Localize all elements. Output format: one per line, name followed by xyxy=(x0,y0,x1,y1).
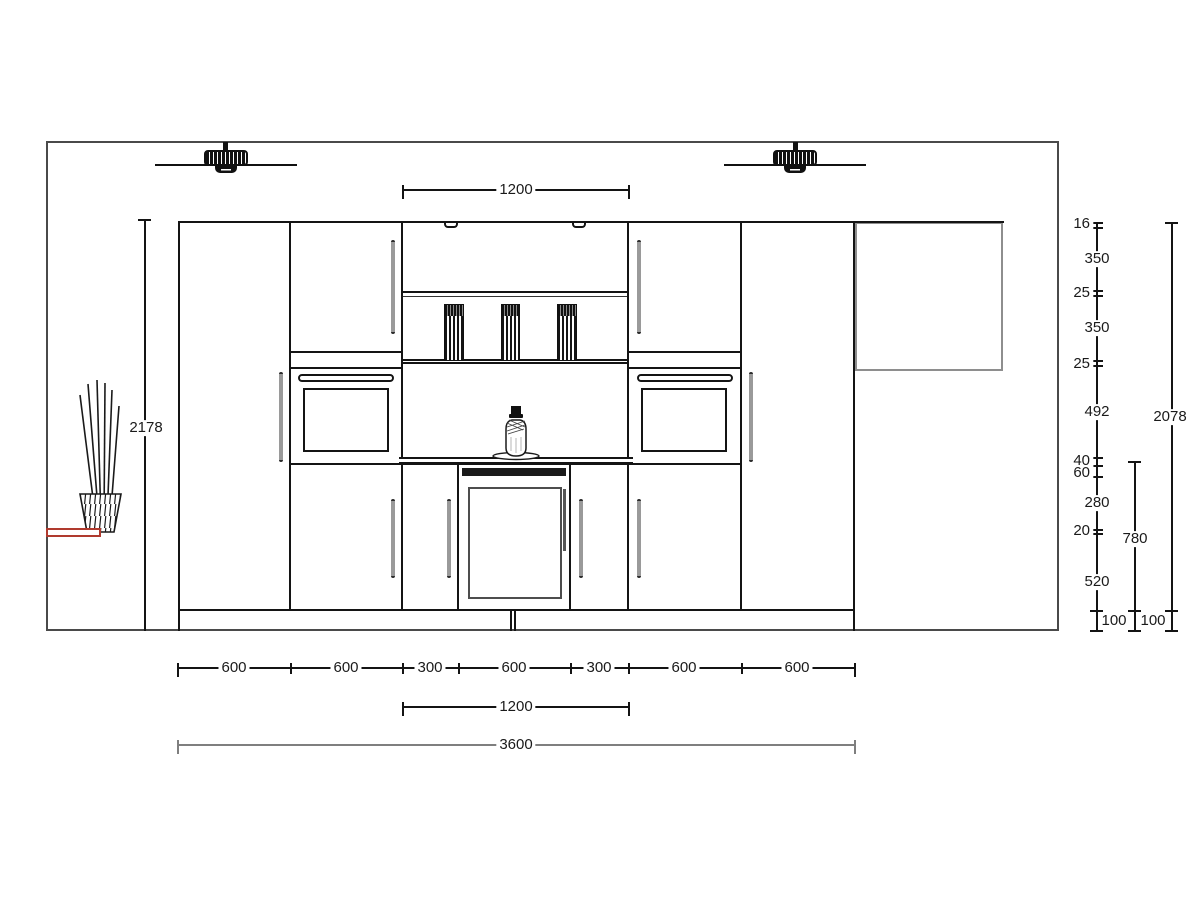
door-handle xyxy=(749,372,753,462)
dim-label: 280 xyxy=(1081,495,1112,511)
dim-tick xyxy=(1128,630,1141,632)
oven-left-handle-bar xyxy=(298,374,394,382)
canister-icon xyxy=(444,304,464,361)
flipup-handle-left xyxy=(444,223,458,228)
dim-label: 350 xyxy=(1081,320,1112,336)
door-handle xyxy=(391,499,395,578)
cooler-leg xyxy=(514,611,516,631)
wine-cooler-window xyxy=(468,487,562,599)
dim-tick xyxy=(1128,610,1141,612)
dim-label: 100 xyxy=(1098,613,1129,629)
dim-tick xyxy=(570,663,572,674)
base-door-right-300 xyxy=(569,463,629,611)
oven-right-window xyxy=(641,388,727,452)
dim-tick xyxy=(854,663,856,677)
door-handle xyxy=(447,499,451,578)
flipup-handle-right xyxy=(572,223,586,228)
canister-body xyxy=(558,316,576,360)
dim-tick xyxy=(628,185,630,199)
dim-label: 25 xyxy=(1070,356,1093,372)
dim-line-right-total xyxy=(1171,223,1173,631)
door-handle xyxy=(637,240,641,334)
dim-label: 600 xyxy=(668,660,699,676)
dim-label: 350 xyxy=(1081,251,1112,267)
dim-tick xyxy=(402,185,404,199)
cabinet-top-line-extension xyxy=(855,221,1004,223)
flipup-door-bottom-line xyxy=(403,291,627,293)
tall-cabinet-left xyxy=(178,221,291,611)
door-handle xyxy=(637,499,641,578)
base-door-right-600 xyxy=(627,463,742,611)
cooler-leg xyxy=(510,611,512,631)
bottle-icon xyxy=(490,405,546,463)
plinth-leg xyxy=(178,611,180,631)
dim-label: 600 xyxy=(498,660,529,676)
dim-tick xyxy=(290,663,292,674)
dim-label-base-height: 780 xyxy=(1119,531,1150,547)
wine-cooler-top-band xyxy=(462,468,566,476)
dim-tick xyxy=(628,663,630,674)
dim-tick xyxy=(1165,630,1178,632)
dim-label: 20 xyxy=(1070,523,1093,539)
dim-label: 300 xyxy=(583,660,614,676)
dim-label: 60 xyxy=(1070,465,1093,481)
dim-label-left-height: 2178 xyxy=(126,420,165,436)
canister-icon xyxy=(501,304,520,361)
dim-label-right-total: 2078 xyxy=(1150,409,1189,425)
light-base xyxy=(784,166,806,173)
door-handle xyxy=(579,499,583,578)
canister-icon xyxy=(557,304,577,361)
canister-cap xyxy=(445,305,463,316)
wine-cooler-handle xyxy=(563,489,566,551)
dim-label: 492 xyxy=(1081,404,1112,420)
dim-label: 25 xyxy=(1070,285,1093,301)
door-handle xyxy=(391,240,395,334)
dim-tick xyxy=(1090,630,1103,632)
dim-tick xyxy=(402,663,404,674)
plant-icon xyxy=(58,372,144,538)
base-door-left-600 xyxy=(289,463,403,611)
dim-label-top-width: 1200 xyxy=(496,182,535,198)
light-shade xyxy=(773,150,817,166)
dim-tick xyxy=(628,702,630,716)
dim-label: 600 xyxy=(781,660,812,676)
wall-cabinet-left xyxy=(289,221,403,353)
dim-tick xyxy=(854,740,856,754)
oven-right-handle-bar xyxy=(637,374,733,382)
dim-tick xyxy=(741,663,743,674)
tall-cabinet-right xyxy=(740,221,855,611)
plinth-leg xyxy=(853,611,855,631)
dim-label-bottom-center: 1200 xyxy=(496,699,535,715)
shelf-line-upper xyxy=(403,296,627,297)
dim-tick xyxy=(177,663,179,677)
dim-tick xyxy=(1165,610,1178,612)
power-outlet-marker xyxy=(46,528,101,537)
dim-tick xyxy=(1165,222,1178,224)
canister-body xyxy=(502,316,519,360)
dim-label: 600 xyxy=(330,660,361,676)
light-shade xyxy=(204,150,248,166)
light-base xyxy=(215,166,237,173)
dim-label-plinth: 100 xyxy=(1137,613,1168,629)
wall-panel-right xyxy=(855,222,1003,371)
dim-label: 600 xyxy=(218,660,249,676)
wall-cabinet-right xyxy=(627,221,742,353)
dim-label-bottom-total: 3600 xyxy=(496,737,535,753)
canister-body xyxy=(445,316,463,360)
dim-label: 16 xyxy=(1070,216,1093,232)
door-handle xyxy=(279,372,283,462)
oven-left-window xyxy=(303,388,389,452)
dim-line-right-stack xyxy=(1096,223,1098,631)
dim-label: 300 xyxy=(414,660,445,676)
dim-tick xyxy=(138,219,151,221)
dim-label: 520 xyxy=(1081,574,1112,590)
dim-tick xyxy=(177,740,179,754)
dim-tick xyxy=(458,663,460,674)
canister-cap xyxy=(558,305,576,316)
dim-tick xyxy=(402,702,404,716)
canister-cap xyxy=(502,305,519,316)
dim-tick xyxy=(1128,461,1141,463)
kitchen-elevation-drawing: 1200 2178 16 350 25 350 25 492 40 60 280… xyxy=(0,0,1200,900)
